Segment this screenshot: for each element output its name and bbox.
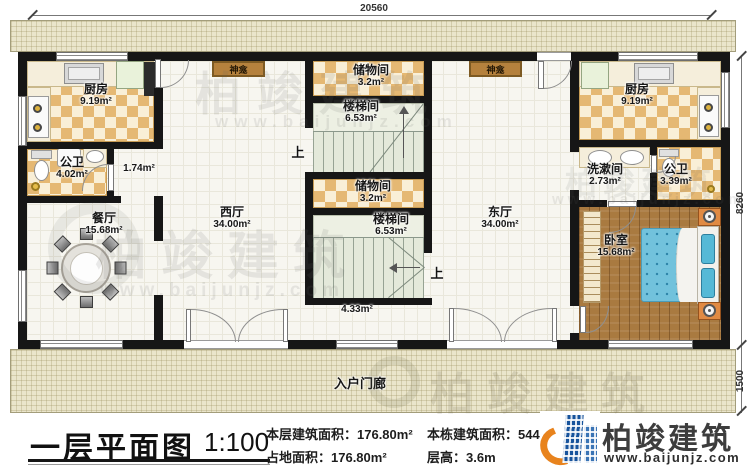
window xyxy=(336,340,398,349)
wall xyxy=(305,52,313,128)
shrine-label: 神龛 xyxy=(229,63,247,76)
wall xyxy=(650,147,657,155)
kitchen-sink xyxy=(64,63,104,84)
door-leaf xyxy=(283,309,288,342)
kitchen-sink xyxy=(634,63,674,84)
room-label-kitchen-left: 厨房9.19m² xyxy=(80,83,112,108)
watermark-logo-ring xyxy=(368,356,420,408)
toilet-icon xyxy=(34,160,49,181)
stair-up-label: 上 xyxy=(430,263,443,282)
room-label-storage-bottom: 储物间3.2m² xyxy=(355,180,391,205)
stat-floor-area: 本层建筑面积：176.80m² xyxy=(266,424,413,443)
wall xyxy=(107,149,114,164)
logo-building-icon xyxy=(584,425,597,463)
wall xyxy=(637,200,730,207)
window xyxy=(18,270,27,322)
rear-terrace xyxy=(10,20,736,52)
burner-icon xyxy=(704,103,713,112)
fridge-icon xyxy=(116,61,144,89)
window xyxy=(40,340,123,349)
stat-footprint: 占地面积：176.80m² xyxy=(266,447,387,466)
floor-drain-icon xyxy=(31,182,40,191)
title-underline-thin xyxy=(28,464,270,465)
room-label-bath-right: 公卫3.39m² xyxy=(660,163,692,188)
stair-treads-top xyxy=(313,131,424,172)
room-label-bath-left: 公卫4.02m² xyxy=(56,156,88,181)
watermark-logo-ring xyxy=(48,202,140,294)
logo-building-icon xyxy=(562,415,583,463)
wall xyxy=(154,88,163,142)
wall xyxy=(154,295,163,340)
shrine-label: 神龛 xyxy=(486,63,504,76)
door-opening xyxy=(537,52,571,61)
title-underline xyxy=(28,459,270,462)
stair-arrow-head xyxy=(399,106,409,114)
burner-icon xyxy=(33,104,42,113)
stair-arrow xyxy=(403,112,404,158)
shrine-cabinet: 神龛 xyxy=(469,61,522,77)
wall xyxy=(18,142,163,149)
wall xyxy=(424,52,432,208)
room-label-east-hall: 东厅34.00m² xyxy=(481,206,518,231)
pillow xyxy=(701,234,715,264)
burner-icon xyxy=(33,123,42,132)
wall xyxy=(570,333,579,349)
wall xyxy=(154,196,163,241)
room-label-stairwell-bottom: 楼梯间6.53m² xyxy=(373,213,409,238)
room-label-west-hall: 西厅34.00m² xyxy=(213,206,250,231)
wall xyxy=(570,190,579,306)
lamp-icon xyxy=(703,210,716,223)
stair-up-label: 上 xyxy=(291,142,304,161)
wall xyxy=(305,172,313,305)
room-label-kitchen-right: 厨房9.19m² xyxy=(621,83,653,108)
room-label-stairwell-top: 楼梯间6.53m² xyxy=(343,100,379,125)
pillow xyxy=(701,268,715,298)
floor-drain-icon xyxy=(707,185,715,193)
dining-chair xyxy=(80,296,93,308)
fridge-icon xyxy=(581,62,609,89)
stair-arrow xyxy=(395,267,420,268)
room-label-under-stair: 4.33m² xyxy=(341,304,373,315)
room-label-bedroom: 卧室15.68m² xyxy=(597,234,634,259)
wall xyxy=(424,208,432,253)
room-label-storage-top: 储物间3.2m² xyxy=(353,64,389,89)
window xyxy=(608,340,693,349)
wall xyxy=(305,172,432,179)
door-leaf xyxy=(552,308,557,342)
basin-icon xyxy=(86,150,104,163)
wall xyxy=(570,140,730,147)
dimension-height-main: 8260 xyxy=(735,175,749,231)
stair-arrow-head xyxy=(389,263,397,273)
window xyxy=(56,52,128,61)
wall xyxy=(650,173,657,200)
room-label-corridor: 1.74m² xyxy=(123,163,155,174)
window xyxy=(618,52,698,61)
bed-sheet xyxy=(676,228,697,302)
window xyxy=(721,72,730,128)
sheet-scale: 1:100 xyxy=(204,427,269,458)
dimension-line-top xyxy=(32,15,712,16)
basin-icon xyxy=(620,150,644,165)
wall xyxy=(154,52,163,59)
toilet-tank xyxy=(31,150,52,159)
shrine-cabinet: 神龛 xyxy=(212,61,265,77)
lamp-icon xyxy=(703,304,716,317)
wall xyxy=(18,196,121,203)
stat-story-height: 层高：3.6m xyxy=(427,447,496,466)
burner-icon xyxy=(704,123,713,132)
door-leaf xyxy=(108,164,114,191)
wall xyxy=(570,200,607,207)
floor-plan: 20560 xyxy=(0,0,750,471)
wall xyxy=(305,208,432,215)
room-label-washroom: 洗漱间2.73m² xyxy=(587,163,623,188)
dimension-width: 20560 xyxy=(339,3,409,14)
brand-url: www.baijunjz.com xyxy=(604,450,740,465)
window xyxy=(18,96,27,146)
dimension-height-porch: 1500 xyxy=(735,353,749,409)
brand-logo xyxy=(540,411,600,469)
